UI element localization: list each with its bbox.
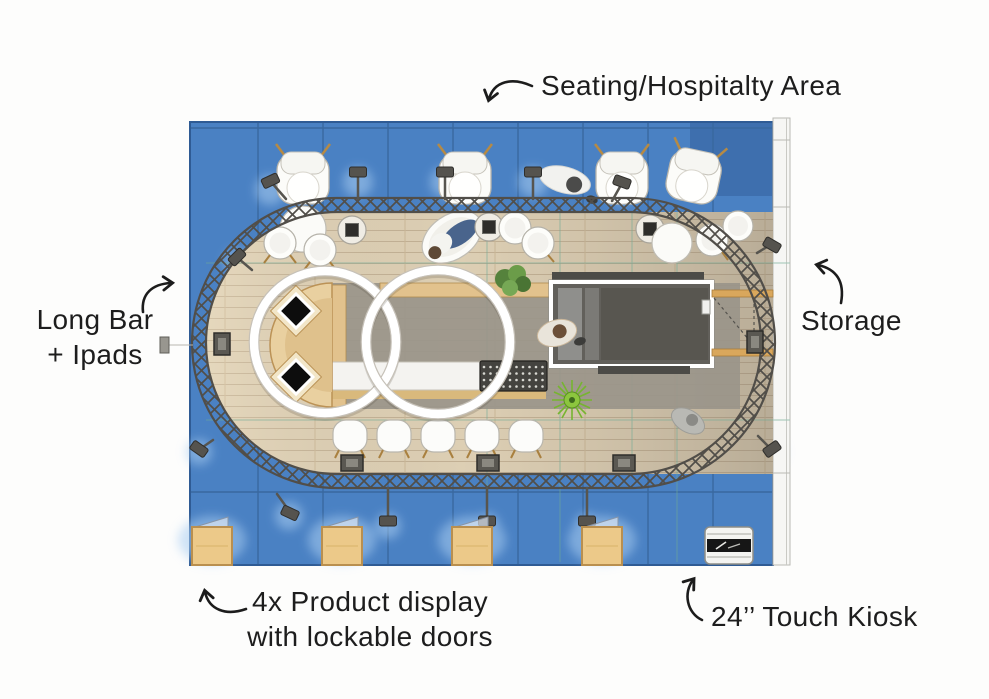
truss-clamp (214, 333, 230, 355)
curved-arrow-icon-seating (489, 81, 532, 99)
bar-stool (465, 420, 499, 458)
plant-starburst (552, 380, 592, 420)
truss-clamp (747, 331, 763, 353)
room-door (702, 300, 710, 314)
label-storage: Storage (801, 303, 902, 338)
bar-stool (333, 420, 367, 458)
label-touch-kiosk: 24’’ Touch Kiosk (711, 599, 918, 634)
label-long-bar-line2: + Ipads (25, 337, 165, 372)
bar-stool (377, 420, 411, 458)
bar-stool (421, 420, 455, 458)
curved-arrow-icon-kiosk (687, 580, 702, 620)
label-long-bar: Long Bar + Ipads (25, 302, 165, 372)
round-chair (304, 234, 336, 270)
pouf (652, 223, 692, 263)
truss-clamp (477, 455, 499, 471)
bar-counter-top (332, 362, 480, 390)
booth-floor-plan-page: Seating/Hospitalty Area Long Bar + Ipads… (0, 0, 989, 699)
touch-kiosk (705, 527, 753, 564)
label-long-bar-line1: Long Bar (25, 302, 165, 337)
bar-stool (509, 420, 543, 458)
armchair (595, 144, 649, 204)
curved-arrow-icon-storage (818, 265, 842, 303)
truss-clamp (613, 455, 635, 471)
label-product-display-line1: 4x Product display (220, 584, 520, 619)
label-seating-area: Seating/Hospitalty Area (541, 68, 841, 103)
label-product-display: 4x Product display with lockable doors (220, 584, 520, 654)
side-table (338, 216, 366, 244)
truss-clamp (341, 455, 363, 471)
label-product-display-line2: with lockable doors (220, 619, 520, 654)
kiosk-screen (707, 539, 751, 552)
